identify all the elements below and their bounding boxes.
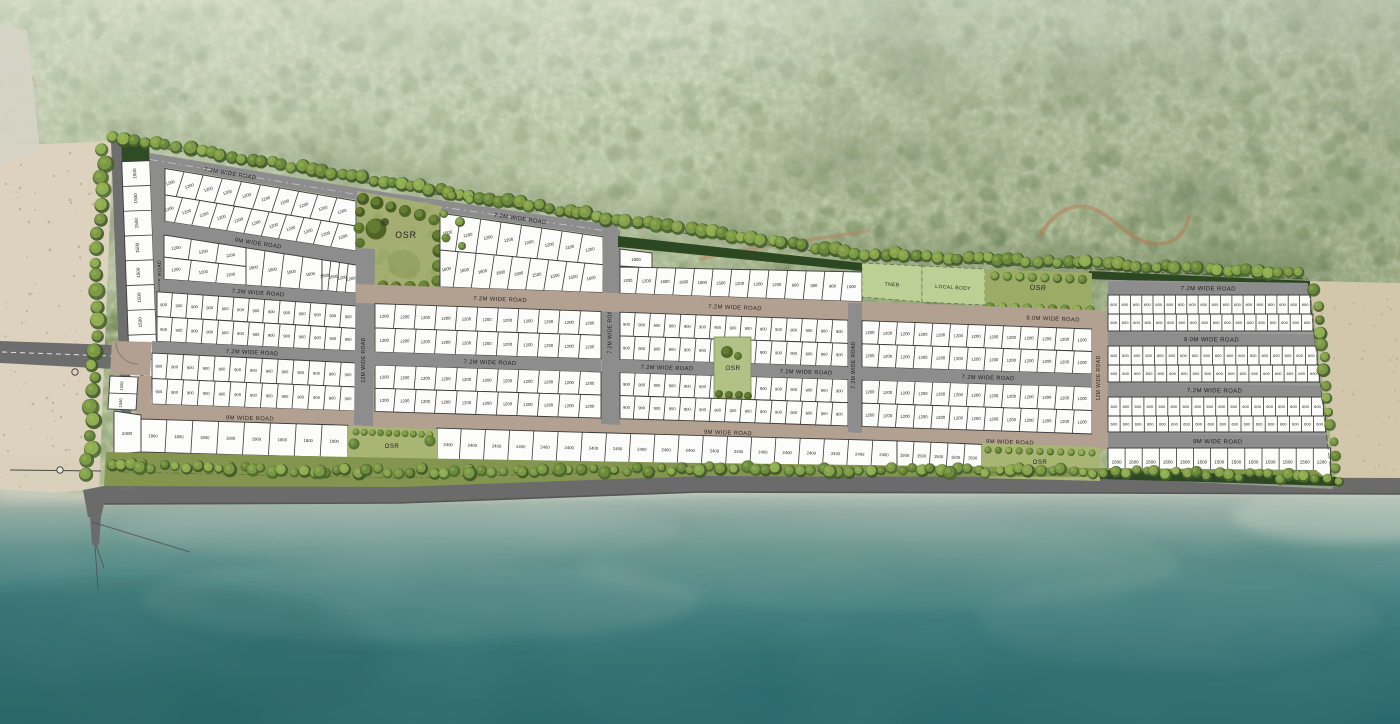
svg-text:1200: 1200 — [865, 330, 875, 335]
svg-text:7.2M WIDE ROAD: 7.2M WIDE ROAD — [608, 307, 614, 354]
svg-text:600: 600 — [1207, 422, 1214, 427]
svg-text:600: 600 — [1244, 422, 1251, 427]
svg-text:1200: 1200 — [953, 333, 963, 338]
svg-text:900: 900 — [234, 367, 242, 372]
svg-text:900: 900 — [821, 328, 829, 333]
svg-text:1200: 1200 — [918, 332, 928, 337]
svg-text:2400: 2400 — [516, 444, 526, 449]
svg-text:900: 900 — [792, 282, 800, 287]
svg-text:1500: 1500 — [917, 453, 927, 458]
svg-text:1200: 1200 — [421, 376, 431, 381]
svg-text:600: 600 — [1157, 371, 1164, 376]
svg-text:900: 900 — [790, 351, 798, 356]
svg-text:900: 900 — [638, 405, 646, 410]
svg-text:900: 900 — [160, 302, 168, 307]
svg-text:600: 600 — [1261, 353, 1268, 358]
svg-text:1200: 1200 — [421, 399, 431, 404]
svg-text:900: 900 — [638, 382, 646, 387]
svg-text:1200: 1200 — [1077, 337, 1087, 342]
svg-text:600: 600 — [1273, 353, 1280, 358]
svg-text:600: 600 — [1110, 320, 1117, 325]
svg-text:900: 900 — [623, 345, 631, 350]
svg-text:900: 900 — [775, 327, 783, 332]
svg-text:600: 600 — [1203, 353, 1210, 358]
svg-text:900: 900 — [836, 411, 844, 416]
svg-text:600: 600 — [1302, 302, 1309, 307]
svg-text:600: 600 — [1310, 371, 1317, 376]
svg-text:2400: 2400 — [637, 447, 647, 452]
svg-text:900: 900 — [669, 406, 677, 411]
svg-text:1200: 1200 — [400, 338, 410, 343]
svg-text:600: 600 — [1236, 320, 1243, 325]
svg-text:1200: 1200 — [400, 398, 410, 403]
svg-text:2400: 2400 — [443, 442, 453, 447]
svg-text:900: 900 — [252, 332, 260, 337]
svg-text:900: 900 — [623, 382, 631, 387]
svg-text:2400: 2400 — [540, 444, 550, 449]
svg-text:900: 900 — [175, 327, 183, 332]
svg-text:900: 900 — [266, 368, 274, 373]
svg-text:1200: 1200 — [421, 315, 431, 320]
svg-text:2400: 2400 — [758, 449, 768, 454]
svg-text:1500: 1500 — [1300, 460, 1311, 465]
svg-text:600: 600 — [1159, 404, 1166, 409]
svg-text:600: 600 — [1182, 404, 1189, 409]
svg-text:1200: 1200 — [1007, 358, 1017, 363]
svg-text:900: 900 — [313, 371, 321, 376]
svg-text:900: 900 — [699, 348, 707, 353]
svg-text:600: 600 — [1268, 422, 1275, 427]
svg-text:1200: 1200 — [1024, 418, 1034, 423]
svg-text:900: 900 — [281, 369, 289, 374]
svg-text:2400: 2400 — [782, 450, 792, 455]
svg-text:1200: 1200 — [865, 389, 875, 394]
svg-text:12M WIDE ROAD: 12M WIDE ROAD — [1096, 355, 1102, 400]
svg-text:600: 600 — [1122, 320, 1129, 325]
svg-text:1200: 1200 — [544, 379, 554, 384]
svg-text:1200: 1200 — [865, 412, 875, 417]
svg-text:1200: 1200 — [544, 402, 554, 407]
svg-text:7.2M WIDE ROAD: 7.2M WIDE ROAD — [1187, 388, 1243, 395]
svg-text:1500: 1500 — [968, 455, 978, 460]
svg-text:600: 600 — [1215, 353, 1222, 358]
svg-text:600: 600 — [1220, 422, 1227, 427]
svg-text:900: 900 — [684, 324, 692, 329]
svg-text:1800: 1800 — [148, 433, 158, 438]
svg-text:600: 600 — [1123, 404, 1130, 409]
svg-text:900: 900 — [821, 411, 829, 416]
svg-text:600: 600 — [1135, 422, 1142, 427]
svg-text:1200: 1200 — [1007, 417, 1017, 422]
svg-text:600: 600 — [1193, 371, 1200, 376]
svg-text:600: 600 — [1167, 302, 1174, 307]
svg-text:900: 900 — [283, 310, 291, 315]
svg-text:1200: 1200 — [865, 353, 875, 358]
svg-text:900: 900 — [790, 410, 798, 415]
svg-text:900: 900 — [345, 396, 353, 401]
svg-text:1200: 1200 — [462, 377, 472, 382]
svg-text:1800: 1800 — [631, 257, 641, 262]
svg-text:1200: 1200 — [544, 343, 554, 348]
svg-text:OSR: OSR — [1030, 283, 1047, 293]
svg-text:900: 900 — [714, 325, 722, 330]
svg-text:1200: 1200 — [462, 340, 472, 345]
svg-text:900: 900 — [203, 366, 211, 371]
svg-text:600: 600 — [1234, 302, 1241, 307]
svg-text:1800: 1800 — [679, 279, 689, 284]
svg-text:900: 900 — [775, 350, 783, 355]
svg-text:1500: 1500 — [1265, 460, 1276, 465]
svg-text:600: 600 — [1242, 404, 1249, 409]
svg-text:900: 900 — [775, 409, 783, 414]
svg-text:2400: 2400 — [855, 452, 865, 457]
svg-text:1500: 1500 — [951, 455, 961, 460]
svg-text:1500: 1500 — [1146, 460, 1157, 465]
svg-text:1200: 1200 — [642, 278, 652, 283]
svg-text:900: 900 — [268, 332, 276, 337]
svg-text:1200: 1200 — [1024, 358, 1034, 363]
svg-text:1200: 1200 — [379, 398, 389, 403]
svg-text:600: 600 — [1254, 404, 1261, 409]
svg-text:600: 600 — [1290, 302, 1297, 307]
svg-text:600: 600 — [1189, 302, 1196, 307]
svg-text:900: 900 — [171, 390, 179, 395]
svg-text:1200: 1200 — [735, 281, 745, 286]
svg-text:2400: 2400 — [661, 447, 671, 452]
svg-text:900: 900 — [684, 347, 692, 352]
svg-text:600: 600 — [1232, 422, 1239, 427]
svg-text:1500: 1500 — [136, 267, 141, 278]
svg-text:600: 600 — [1280, 422, 1287, 427]
svg-text:900: 900 — [191, 304, 199, 309]
svg-text:600: 600 — [1183, 422, 1190, 427]
svg-text:900: 900 — [745, 408, 753, 413]
svg-text:600: 600 — [1111, 404, 1118, 409]
svg-text:600: 600 — [1157, 353, 1164, 358]
svg-text:1200: 1200 — [900, 331, 910, 336]
svg-text:600: 600 — [1167, 320, 1174, 325]
svg-text:600: 600 — [1218, 404, 1225, 409]
svg-text:600: 600 — [1192, 353, 1199, 358]
svg-text:1200: 1200 — [1007, 335, 1017, 340]
svg-text:600: 600 — [1298, 371, 1305, 376]
svg-text:600: 600 — [1123, 422, 1130, 427]
svg-text:1200: 1200 — [936, 332, 946, 337]
svg-text:1200: 1200 — [1042, 395, 1052, 400]
svg-text:900: 900 — [237, 331, 245, 336]
svg-text:900: 900 — [684, 384, 692, 389]
svg-text:900: 900 — [836, 352, 844, 357]
svg-text:900: 900 — [699, 384, 707, 389]
svg-text:600: 600 — [1169, 353, 1176, 358]
svg-text:900: 900 — [810, 283, 818, 288]
svg-text:1500: 1500 — [135, 242, 140, 253]
svg-text:600: 600 — [1144, 320, 1151, 325]
svg-text:900: 900 — [218, 366, 226, 371]
svg-text:2400: 2400 — [807, 450, 817, 455]
svg-text:900: 900 — [314, 335, 322, 340]
svg-text:600: 600 — [1258, 320, 1265, 325]
svg-text:1200: 1200 — [564, 403, 574, 408]
svg-text:1200: 1200 — [1060, 337, 1070, 342]
svg-text:600: 600 — [1122, 353, 1129, 358]
svg-text:1200: 1200 — [400, 375, 410, 380]
svg-text:900: 900 — [299, 311, 307, 316]
svg-text:900: 900 — [345, 372, 353, 377]
svg-text:900: 900 — [171, 364, 179, 369]
svg-text:900: 900 — [222, 330, 230, 335]
svg-text:600: 600 — [1278, 404, 1285, 409]
svg-text:600: 600 — [1147, 422, 1154, 427]
svg-text:900: 900 — [699, 407, 707, 412]
svg-text:1200: 1200 — [482, 341, 492, 346]
svg-text:12M WIDE ROAD: 12M WIDE ROAD — [361, 337, 367, 382]
svg-text:600: 600 — [1110, 353, 1117, 358]
svg-text:900: 900 — [160, 327, 168, 332]
svg-text:1200: 1200 — [900, 414, 910, 419]
svg-text:600: 600 — [1304, 422, 1311, 427]
svg-text:1500: 1500 — [1283, 460, 1294, 465]
svg-text:1500: 1500 — [134, 218, 139, 229]
svg-text:1200: 1200 — [503, 342, 513, 347]
svg-text:2400: 2400 — [879, 452, 889, 457]
svg-text:900: 900 — [805, 351, 813, 356]
svg-text:1200: 1200 — [1060, 419, 1070, 424]
svg-text:600: 600 — [1169, 371, 1176, 376]
svg-text:1200: 1200 — [523, 402, 533, 407]
svg-text:1500: 1500 — [137, 317, 142, 328]
svg-text:900: 900 — [314, 312, 322, 317]
svg-text:600: 600 — [1200, 302, 1207, 307]
svg-text:1800: 1800 — [252, 436, 262, 441]
svg-text:600: 600 — [1122, 302, 1129, 307]
svg-text:900: 900 — [805, 410, 813, 415]
svg-text:900: 900 — [760, 409, 768, 414]
svg-text:900: 900 — [237, 307, 245, 312]
svg-text:900: 900 — [653, 323, 661, 328]
svg-text:1500: 1500 — [1112, 460, 1123, 465]
svg-text:1200: 1200 — [623, 278, 633, 283]
svg-text:600: 600 — [1216, 371, 1223, 376]
svg-text:900: 900 — [252, 308, 260, 313]
svg-text:2400: 2400 — [686, 448, 696, 453]
svg-text:1200: 1200 — [1042, 336, 1052, 341]
svg-text:900: 900 — [329, 395, 337, 400]
svg-text:600: 600 — [1230, 404, 1237, 409]
svg-text:1200: 1200 — [585, 381, 595, 386]
svg-text:1200: 1200 — [936, 355, 946, 360]
svg-text:900: 900 — [729, 325, 737, 330]
svg-text:600: 600 — [1257, 302, 1264, 307]
svg-text:1200: 1200 — [1077, 360, 1087, 365]
svg-text:1200: 1200 — [564, 320, 574, 325]
svg-text:600: 600 — [1266, 404, 1273, 409]
svg-text:1200: 1200 — [936, 391, 946, 396]
svg-text:600: 600 — [1302, 404, 1309, 409]
svg-text:900: 900 — [345, 314, 353, 319]
svg-text:1200: 1200 — [503, 318, 513, 323]
svg-text:1200: 1200 — [523, 379, 533, 384]
svg-text:900: 900 — [729, 408, 737, 413]
svg-text:600: 600 — [1178, 302, 1185, 307]
svg-text:600: 600 — [1206, 404, 1213, 409]
svg-text:1200: 1200 — [953, 392, 963, 397]
svg-text:1200: 1200 — [462, 400, 472, 405]
svg-text:1500: 1500 — [1163, 460, 1174, 465]
svg-text:1500: 1500 — [1214, 460, 1225, 465]
svg-text:600: 600 — [1279, 302, 1286, 307]
svg-text:600: 600 — [1251, 371, 1258, 376]
svg-text:2400: 2400 — [831, 451, 841, 456]
svg-text:600: 600 — [1304, 320, 1311, 325]
svg-text:900: 900 — [638, 346, 646, 351]
svg-text:900: 900 — [206, 305, 214, 310]
svg-text:1200: 1200 — [1042, 359, 1052, 364]
svg-text:900: 900 — [329, 371, 337, 376]
svg-text:1200: 1200 — [503, 378, 513, 383]
svg-text:1200: 1200 — [753, 281, 763, 286]
svg-text:1200: 1200 — [1060, 359, 1070, 364]
svg-text:1500: 1500 — [137, 292, 142, 303]
svg-text:1500: 1500 — [1180, 460, 1191, 465]
svg-text:900: 900 — [699, 324, 707, 329]
svg-text:900: 900 — [638, 322, 646, 327]
svg-text:1200: 1200 — [441, 399, 451, 404]
svg-text:900: 900 — [775, 386, 783, 391]
svg-text:900: 900 — [155, 389, 163, 394]
svg-text:600: 600 — [1275, 371, 1282, 376]
svg-text:1200: 1200 — [482, 378, 492, 383]
svg-text:900: 900 — [836, 329, 844, 334]
svg-text:OSR: OSR — [725, 365, 740, 372]
svg-text:900: 900 — [283, 333, 291, 338]
svg-text:600: 600 — [1287, 371, 1294, 376]
svg-text:1200: 1200 — [900, 354, 910, 359]
svg-text:OSR: OSR — [395, 230, 416, 240]
svg-text:900: 900 — [313, 395, 321, 400]
svg-text:900: 900 — [821, 352, 829, 357]
svg-text:1200: 1200 — [971, 416, 981, 421]
svg-text:900: 900 — [250, 393, 258, 398]
svg-text:600: 600 — [1170, 404, 1177, 409]
svg-text:600: 600 — [1293, 320, 1300, 325]
svg-text:1200: 1200 — [989, 416, 999, 421]
svg-text:9M WIDE ROAD: 9M WIDE ROAD — [1193, 439, 1243, 446]
svg-text:1200: 1200 — [379, 374, 389, 379]
svg-text:9.0M WIDE ROAD: 9.0M WIDE ROAD — [1184, 337, 1240, 344]
svg-text:1200: 1200 — [900, 390, 910, 395]
svg-text:1500: 1500 — [1197, 460, 1208, 465]
svg-text:600: 600 — [1228, 371, 1235, 376]
svg-text:1200: 1200 — [953, 415, 963, 420]
svg-text:900: 900 — [155, 364, 163, 369]
svg-text:600: 600 — [1135, 404, 1142, 409]
svg-text:1200: 1200 — [1024, 394, 1034, 399]
svg-text:900: 900 — [829, 283, 837, 288]
svg-text:1200: 1200 — [441, 316, 451, 321]
svg-text:600: 600 — [1133, 320, 1140, 325]
svg-text:600: 600 — [1213, 320, 1220, 325]
svg-text:900: 900 — [790, 387, 798, 392]
svg-text:900: 900 — [268, 309, 276, 314]
svg-text:1200: 1200 — [772, 282, 782, 287]
svg-text:1200: 1200 — [462, 316, 472, 321]
svg-text:600: 600 — [1227, 353, 1234, 358]
svg-text:600: 600 — [1146, 371, 1153, 376]
svg-text:1200: 1200 — [585, 344, 595, 349]
svg-text:600: 600 — [1292, 422, 1299, 427]
svg-text:1200: 1200 — [918, 414, 928, 419]
svg-text:600: 600 — [1224, 320, 1231, 325]
svg-text:1200: 1200 — [883, 390, 893, 395]
svg-text:600: 600 — [1144, 302, 1151, 307]
svg-text:600: 600 — [1240, 371, 1247, 376]
svg-text:600: 600 — [1263, 371, 1270, 376]
svg-text:600: 600 — [1247, 320, 1254, 325]
svg-text:1200: 1200 — [1077, 419, 1087, 424]
svg-text:900: 900 — [250, 368, 258, 373]
svg-text:600: 600 — [1181, 371, 1188, 376]
svg-text:900: 900 — [669, 347, 677, 352]
svg-text:900: 900 — [669, 383, 677, 388]
svg-text:1200: 1200 — [971, 356, 981, 361]
svg-text:600: 600 — [1308, 353, 1315, 358]
svg-text:1200: 1200 — [421, 339, 431, 344]
svg-text:600: 600 — [1155, 302, 1162, 307]
svg-text:1800: 1800 — [278, 437, 288, 442]
svg-text:600: 600 — [1134, 353, 1141, 358]
svg-text:1200: 1200 — [523, 342, 533, 347]
svg-text:1200: 1200 — [503, 401, 513, 406]
svg-text:600: 600 — [1201, 320, 1208, 325]
svg-text:600: 600 — [1245, 302, 1252, 307]
svg-text:600: 600 — [1250, 353, 1257, 358]
svg-text:1200: 1200 — [441, 340, 451, 345]
svg-text:1500: 1500 — [119, 381, 124, 391]
svg-text:1800: 1800 — [226, 436, 236, 441]
svg-text:900: 900 — [714, 407, 722, 412]
svg-text:1200: 1200 — [918, 355, 928, 360]
svg-text:900: 900 — [222, 306, 230, 311]
svg-text:2400: 2400 — [492, 443, 502, 448]
svg-text:600: 600 — [1256, 422, 1263, 427]
svg-text:900: 900 — [669, 323, 677, 328]
svg-text:1200: 1200 — [564, 380, 574, 385]
svg-text:900: 900 — [745, 326, 753, 331]
svg-text:600: 600 — [1296, 353, 1303, 358]
svg-text:1200: 1200 — [989, 357, 999, 362]
svg-text:1200: 1200 — [989, 393, 999, 398]
svg-text:900: 900 — [203, 391, 211, 396]
svg-text:1500: 1500 — [934, 454, 944, 459]
svg-text:600: 600 — [1238, 353, 1245, 358]
svg-text:1200: 1200 — [883, 331, 893, 336]
svg-text:1800: 1800 — [329, 439, 339, 444]
svg-text:1200: 1200 — [1317, 460, 1328, 465]
svg-text:1800: 1800 — [697, 280, 707, 285]
svg-text:900: 900 — [760, 350, 768, 355]
svg-text:1200: 1200 — [971, 334, 981, 339]
svg-text:1200: 1200 — [585, 404, 595, 409]
svg-text:900: 900 — [653, 406, 661, 411]
svg-text:1500: 1500 — [846, 284, 856, 289]
svg-text:900: 900 — [218, 391, 226, 396]
svg-text:1500: 1500 — [132, 168, 137, 179]
svg-text:1200: 1200 — [1007, 394, 1017, 399]
svg-text:600: 600 — [1134, 371, 1141, 376]
svg-text:600: 600 — [1223, 302, 1230, 307]
svg-text:600: 600 — [1179, 320, 1186, 325]
